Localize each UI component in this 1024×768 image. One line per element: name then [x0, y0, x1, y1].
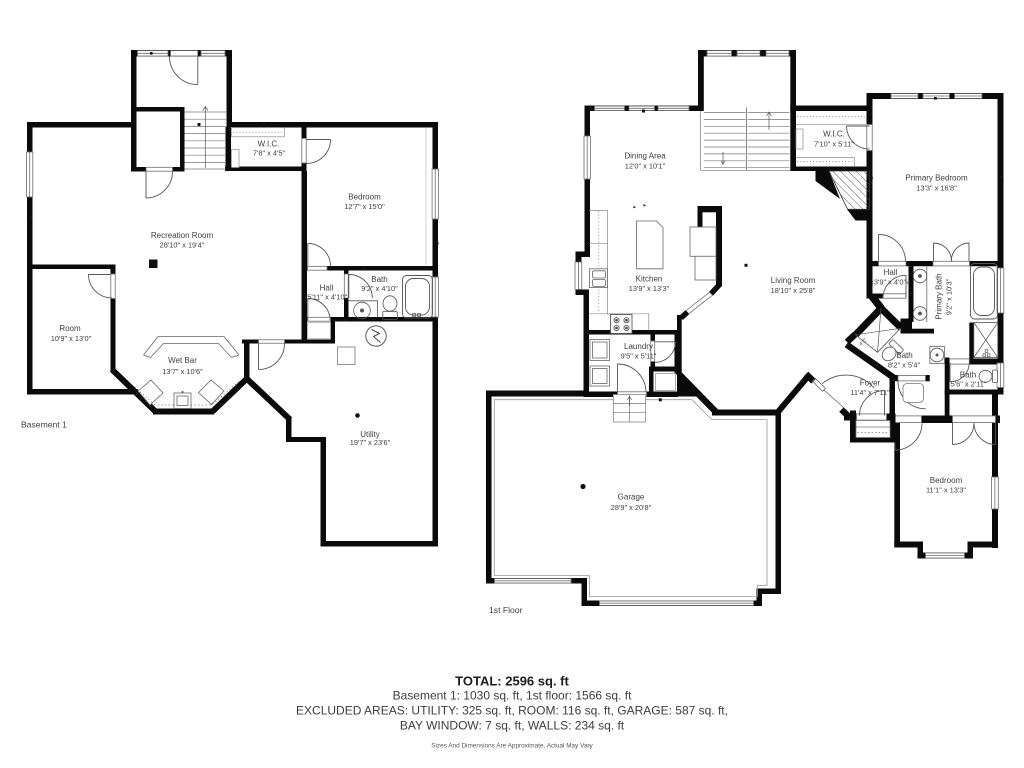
- svg-text:10'9" x 13'0": 10'9" x 13'0": [51, 334, 92, 343]
- svg-text:Basement 1: 1030 sq. ft, 1st f: Basement 1: 1030 sq. ft, 1st floor: 1566…: [393, 689, 632, 703]
- svg-text:Garage: Garage: [618, 493, 645, 502]
- svg-text:Bath: Bath: [896, 351, 912, 360]
- svg-text:28'9" x 20'8": 28'9" x 20'8": [611, 503, 652, 512]
- svg-text:Bedroom: Bedroom: [348, 193, 381, 202]
- svg-text:8'2" x 5'4": 8'2" x 5'4": [888, 361, 921, 370]
- svg-text:Hall: Hall: [320, 284, 334, 293]
- svg-text:‹3'9" x 4'0"›: ‹3'9" x 4'0"›: [871, 278, 909, 287]
- svg-text:Kitchen: Kitchen: [636, 275, 663, 284]
- svg-text:BAY WINDOW: 7 sq. ft, WALLS: 2: BAY WINDOW: 7 sq. ft, WALLS: 234 sq. ft: [400, 719, 625, 733]
- svg-text:Bath: Bath: [371, 275, 387, 284]
- svg-text:Room: Room: [59, 324, 81, 333]
- svg-text:EXCLUDED AREAS: UTILITY: 325 s: EXCLUDED AREAS: UTILITY: 325 sq. ft, ROO…: [296, 704, 728, 718]
- svg-text:11'1" x 13'3": 11'1" x 13'3": [926, 486, 966, 495]
- svg-text:1st Floor: 1st Floor: [489, 605, 523, 615]
- svg-text:9'5" x 5'11": 9'5" x 5'11": [621, 352, 657, 361]
- svg-text:12'0" x 10'1": 12'0" x 10'1": [625, 162, 666, 171]
- svg-text:13'7" x 10'6": 13'7" x 10'6": [162, 367, 203, 376]
- svg-text:Bedroom: Bedroom: [930, 476, 963, 485]
- svg-text:Dining Area: Dining Area: [624, 152, 666, 161]
- svg-text:9'2" x 4'10": 9'2" x 4'10": [361, 284, 398, 293]
- svg-text:11'4" x 7'11": 11'4" x 7'11": [850, 388, 890, 397]
- svg-text:Living Room: Living Room: [771, 276, 816, 285]
- svg-text:7'8" x 4'5": 7'8" x 4'5": [253, 149, 286, 158]
- svg-text:Wet Bar: Wet Bar: [168, 356, 197, 365]
- svg-text:13'3" x 16'8": 13'3" x 16'8": [916, 184, 957, 193]
- svg-text:7'10" x 5'11": 7'10" x 5'11": [814, 140, 854, 149]
- svg-text:Hall: Hall: [884, 268, 898, 277]
- svg-text:9'2" x 10'3": 9'2" x 10'3": [945, 278, 954, 315]
- svg-text:Foyer: Foyer: [860, 379, 881, 388]
- svg-text:18'10" x 25'8": 18'10" x 25'8": [771, 286, 816, 295]
- svg-text:12'7" x 15'0": 12'7" x 15'0": [344, 202, 385, 211]
- svg-text:28'10" x 19'4": 28'10" x 19'4": [160, 241, 205, 250]
- svg-text:Primary Bedroom: Primary Bedroom: [905, 174, 968, 183]
- svg-text:W.I.C.: W.I.C.: [258, 140, 280, 149]
- svg-text:W.I.C.: W.I.C.: [823, 130, 845, 139]
- svg-text:19'7" x 23'6": 19'7" x 23'6": [350, 438, 391, 447]
- svg-text:Basement 1: Basement 1: [21, 420, 67, 430]
- svg-text:‹5'11" x 4'10": ‹5'11" x 4'10": [305, 293, 348, 302]
- svg-text:Primary Bath: Primary Bath: [935, 273, 944, 319]
- svg-text:TOTAL: 2596 sq. ft: TOTAL: 2596 sq. ft: [455, 674, 569, 689]
- svg-text:Laundry: Laundry: [624, 342, 653, 351]
- svg-text:13'9" x 13'3": 13'9" x 13'3": [629, 284, 670, 293]
- svg-text:Bath: Bath: [960, 371, 976, 380]
- svg-text:Sizes And Dimensions Are Appro: Sizes And Dimensions Are Approximate, Ac…: [431, 743, 593, 750]
- svg-text:5'6" x 2'11": 5'6" x 2'11": [951, 380, 987, 389]
- svg-text:Recreation Room: Recreation Room: [151, 231, 214, 240]
